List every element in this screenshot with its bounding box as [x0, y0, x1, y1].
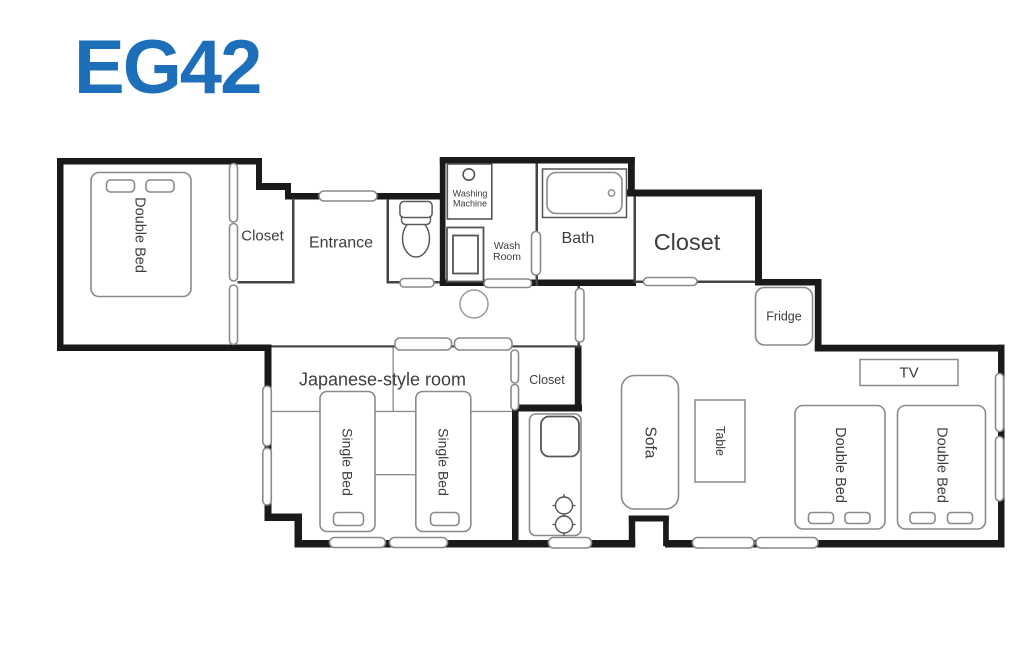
svg-text:Double Bed: Double Bed [132, 197, 148, 273]
svg-text:Table: Table [713, 426, 727, 456]
svg-text:Closet: Closet [529, 373, 565, 387]
svg-text:Washing: Washing [453, 189, 488, 199]
svg-text:Fridge: Fridge [766, 310, 801, 324]
svg-text:Machine: Machine [453, 199, 487, 209]
svg-text:Bath: Bath [562, 230, 595, 247]
svg-text:Double Bed: Double Bed [933, 427, 949, 503]
svg-text:Room: Room [493, 251, 521, 263]
svg-text:Single Bed: Single Bed [435, 428, 451, 496]
svg-text:Closet: Closet [654, 229, 721, 255]
svg-text:Single Bed: Single Bed [340, 428, 356, 496]
svg-text:Sofa: Sofa [642, 427, 659, 459]
svg-text:Closet: Closet [241, 228, 284, 245]
svg-text:Entrance: Entrance [309, 235, 373, 252]
svg-text:EG42: EG42 [74, 25, 260, 110]
svg-text:TV: TV [899, 365, 918, 382]
svg-text:Japanese-style room: Japanese-style room [299, 370, 466, 390]
svg-text:Double Bed: Double Bed [832, 427, 848, 503]
